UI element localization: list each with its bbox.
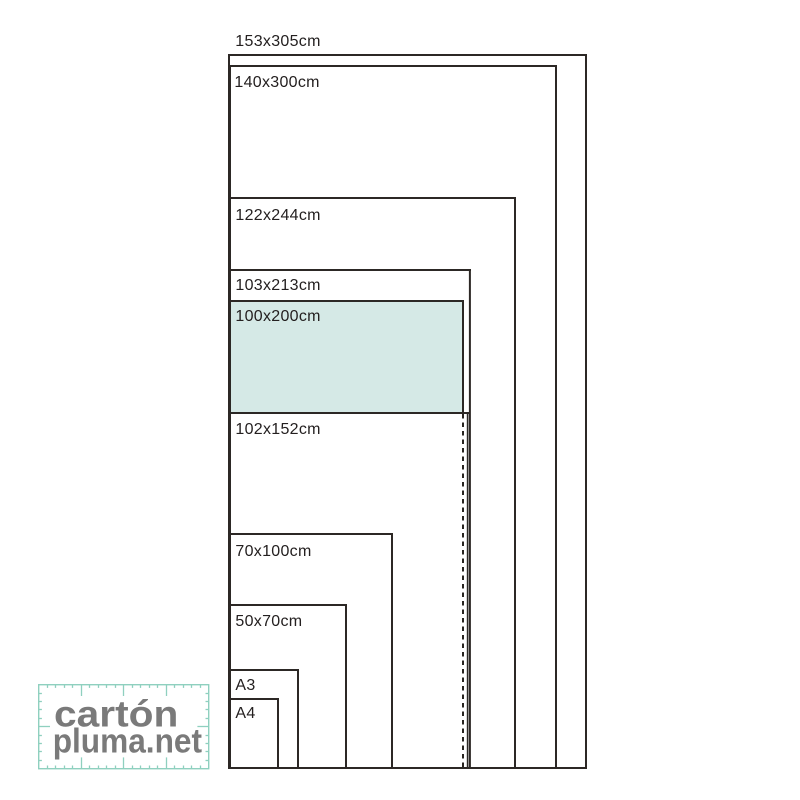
- svg-text:pluma.net: pluma.net: [53, 721, 202, 759]
